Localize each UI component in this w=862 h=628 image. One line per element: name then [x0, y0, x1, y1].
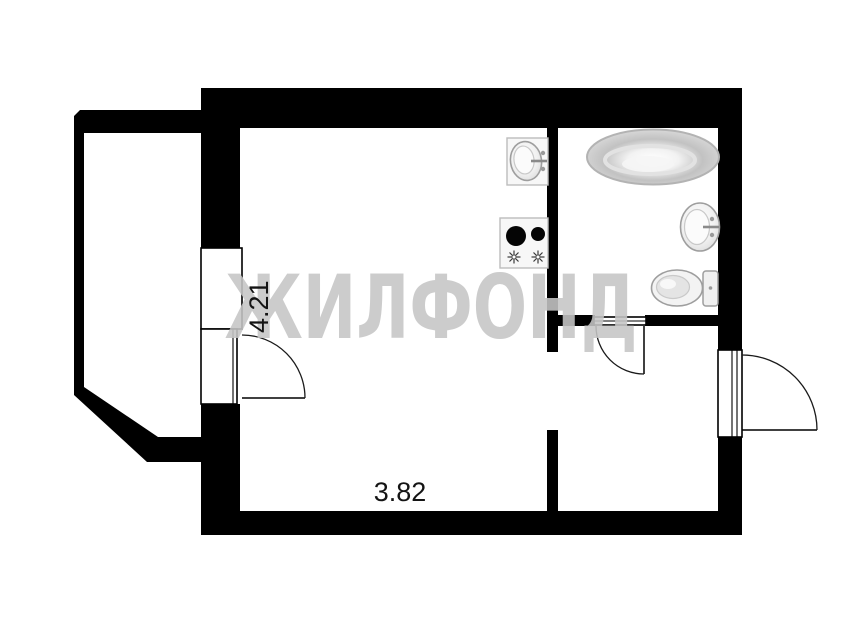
wall-bottom	[201, 511, 742, 535]
wall-right-lower	[718, 437, 742, 511]
wall-divider-lower	[547, 430, 558, 511]
wall-right-upper	[718, 128, 742, 350]
wall-top	[201, 88, 742, 128]
balcony-wall	[74, 110, 202, 462]
door-swing-arc	[742, 355, 817, 430]
wash-basin-icon	[681, 203, 720, 251]
dimension-vertical-label: 4.21	[244, 280, 274, 333]
floor-plan-drawing: ЖИЛФОНД 4.21 3.82	[0, 0, 862, 628]
wall-left-upper	[201, 88, 240, 248]
bathtub-icon	[587, 130, 719, 185]
kitchen-sink-icon	[507, 138, 548, 185]
entry-door	[742, 355, 817, 430]
dimension-horizontal-label: 3.82	[374, 477, 427, 507]
toilet-icon	[652, 270, 719, 306]
floor-plan-page: ЖИЛФОНД 4.21 3.82	[0, 0, 862, 628]
wall-bathroom-right	[645, 315, 718, 326]
entry-door-frame	[718, 350, 742, 437]
watermark-logo: ЖИЛФОНД	[225, 256, 638, 359]
